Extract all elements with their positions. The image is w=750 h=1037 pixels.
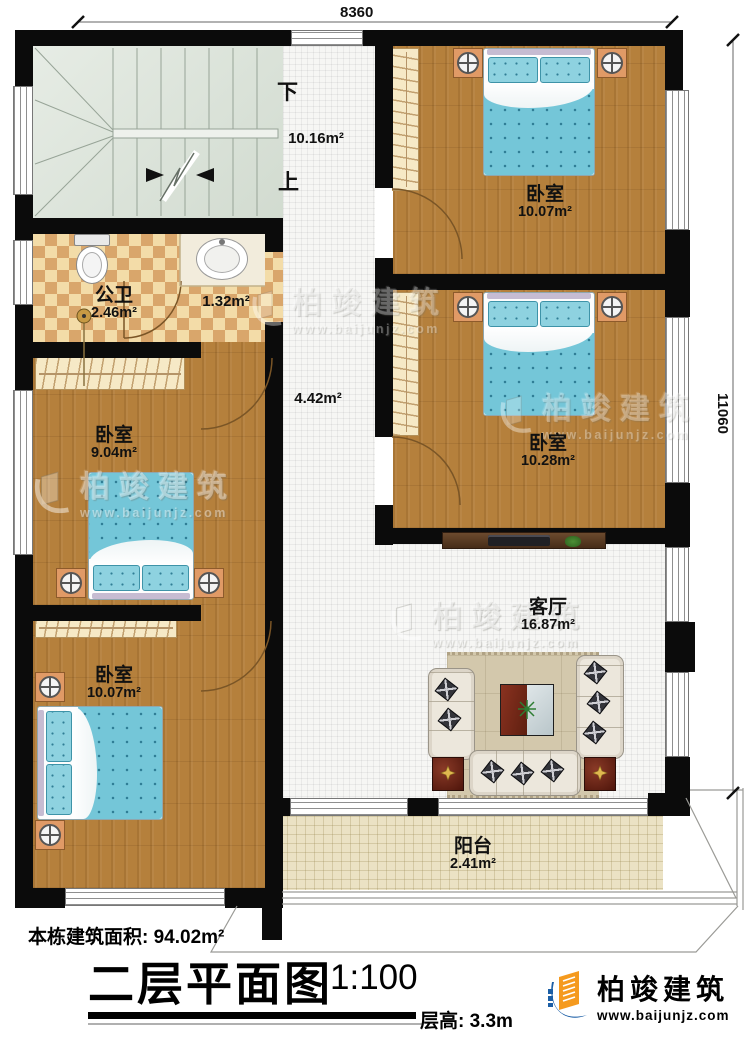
nightstand — [597, 48, 627, 78]
brand-name: 柏竣建筑 — [597, 968, 730, 1008]
wall-segment — [31, 218, 283, 234]
balcony-window — [290, 798, 408, 816]
wall-segment — [363, 30, 683, 46]
title-underline-thin — [88, 1023, 422, 1025]
nightstand — [194, 568, 224, 598]
wall-segment — [15, 888, 65, 908]
stairs-down-label: 下 — [277, 76, 298, 106]
sofa-right — [576, 655, 624, 759]
washbasin — [196, 238, 248, 280]
plant-icon — [565, 536, 581, 547]
wall-segment — [375, 274, 690, 290]
room-label-bedroom-top-right: 卧室10.07m² — [518, 185, 572, 221]
stairs-up-label: 上 — [278, 166, 299, 196]
lamp-icon — [39, 824, 61, 846]
lamp-icon — [457, 296, 479, 318]
window — [65, 888, 225, 906]
brand-website: www.baijunjz.com — [597, 1008, 730, 1023]
wall-segment — [265, 218, 283, 252]
room-label-bathroom: 公卫2.46m² — [91, 286, 137, 322]
double-bed — [88, 472, 194, 600]
wall-segment — [265, 798, 290, 816]
wall-segment — [15, 30, 291, 46]
window — [291, 30, 363, 46]
lamp-icon — [457, 52, 479, 74]
dimension-width: 8360 — [340, 4, 373, 21]
nightstand — [453, 48, 483, 78]
sofa-main — [469, 750, 581, 796]
window — [665, 547, 689, 622]
floor-height-text: 层高: 3.3m — [420, 1006, 513, 1033]
room-label-bedroom-mid-left: 卧室9.04m² — [91, 426, 137, 462]
window — [13, 240, 33, 305]
nightstand — [35, 672, 65, 702]
toilet — [74, 234, 110, 286]
title-underline — [88, 1012, 416, 1019]
lamp-icon — [39, 676, 61, 698]
double-bed — [483, 48, 595, 176]
window — [13, 390, 33, 555]
nightstand — [35, 820, 65, 850]
lamp-icon — [60, 572, 82, 594]
room-label-living-room: 客厅16.87m² — [521, 598, 575, 634]
coffee-table — [500, 684, 554, 736]
wall-segment — [665, 30, 683, 90]
window — [665, 90, 689, 230]
room-label-balcony: 阳台2.41m² — [450, 837, 496, 873]
nightstand — [597, 292, 627, 322]
stairs-area-label: 10.16m² — [288, 130, 344, 147]
building-area-text: 本栋建筑面积: 94.02m² — [28, 922, 224, 949]
balcony-window — [438, 798, 648, 816]
sofa-left — [428, 668, 475, 760]
wall-segment — [15, 46, 33, 86]
room-label-bedroom-mid-right: 卧室10.28m² — [521, 434, 575, 470]
page-title: 二层平面图 — [88, 948, 333, 1014]
hallway-floor — [283, 46, 375, 544]
wall-segment — [408, 798, 438, 816]
room-label-wash-area: 1.32m² — [202, 293, 250, 310]
brand-logo: 柏竣建筑 www.baijunjz.com — [545, 968, 730, 1024]
side-table — [584, 757, 616, 791]
lamp-icon — [601, 52, 623, 74]
wall-segment — [375, 505, 393, 545]
window — [13, 86, 33, 195]
room-label-hallway: 4.42m² — [294, 390, 342, 407]
wall-segment — [665, 483, 690, 547]
wardrobe — [392, 48, 419, 191]
wall-segment — [31, 605, 201, 621]
nightstand — [453, 292, 483, 322]
wall-segment — [665, 622, 695, 672]
double-bed — [483, 292, 595, 416]
wall-segment — [648, 793, 690, 816]
wall-segment — [31, 342, 201, 358]
wall-segment — [375, 46, 393, 188]
double-bed — [37, 706, 161, 818]
side-table — [432, 757, 464, 791]
scale-text: 1:100 — [330, 958, 418, 998]
lamp-icon — [601, 296, 623, 318]
window — [665, 317, 689, 483]
tv-console — [442, 532, 606, 549]
wall-segment — [262, 888, 282, 940]
window — [665, 672, 689, 757]
dimension-height: 11060 — [714, 393, 731, 434]
wardrobe — [392, 292, 419, 436]
room-label-bedroom-bottom-left: 卧室10.07m² — [87, 666, 141, 702]
staircase-floor — [33, 46, 283, 218]
wardrobe — [35, 356, 185, 390]
brand-logo-icon — [545, 968, 589, 1024]
wall-segment — [665, 230, 690, 317]
floor-plan-page: 柏竣建筑www.baijunjz.com 柏竣建筑www.baijunjz.co… — [0, 0, 750, 1037]
tv-icon — [488, 535, 550, 546]
nightstand — [56, 568, 86, 598]
lamp-icon — [198, 572, 220, 594]
